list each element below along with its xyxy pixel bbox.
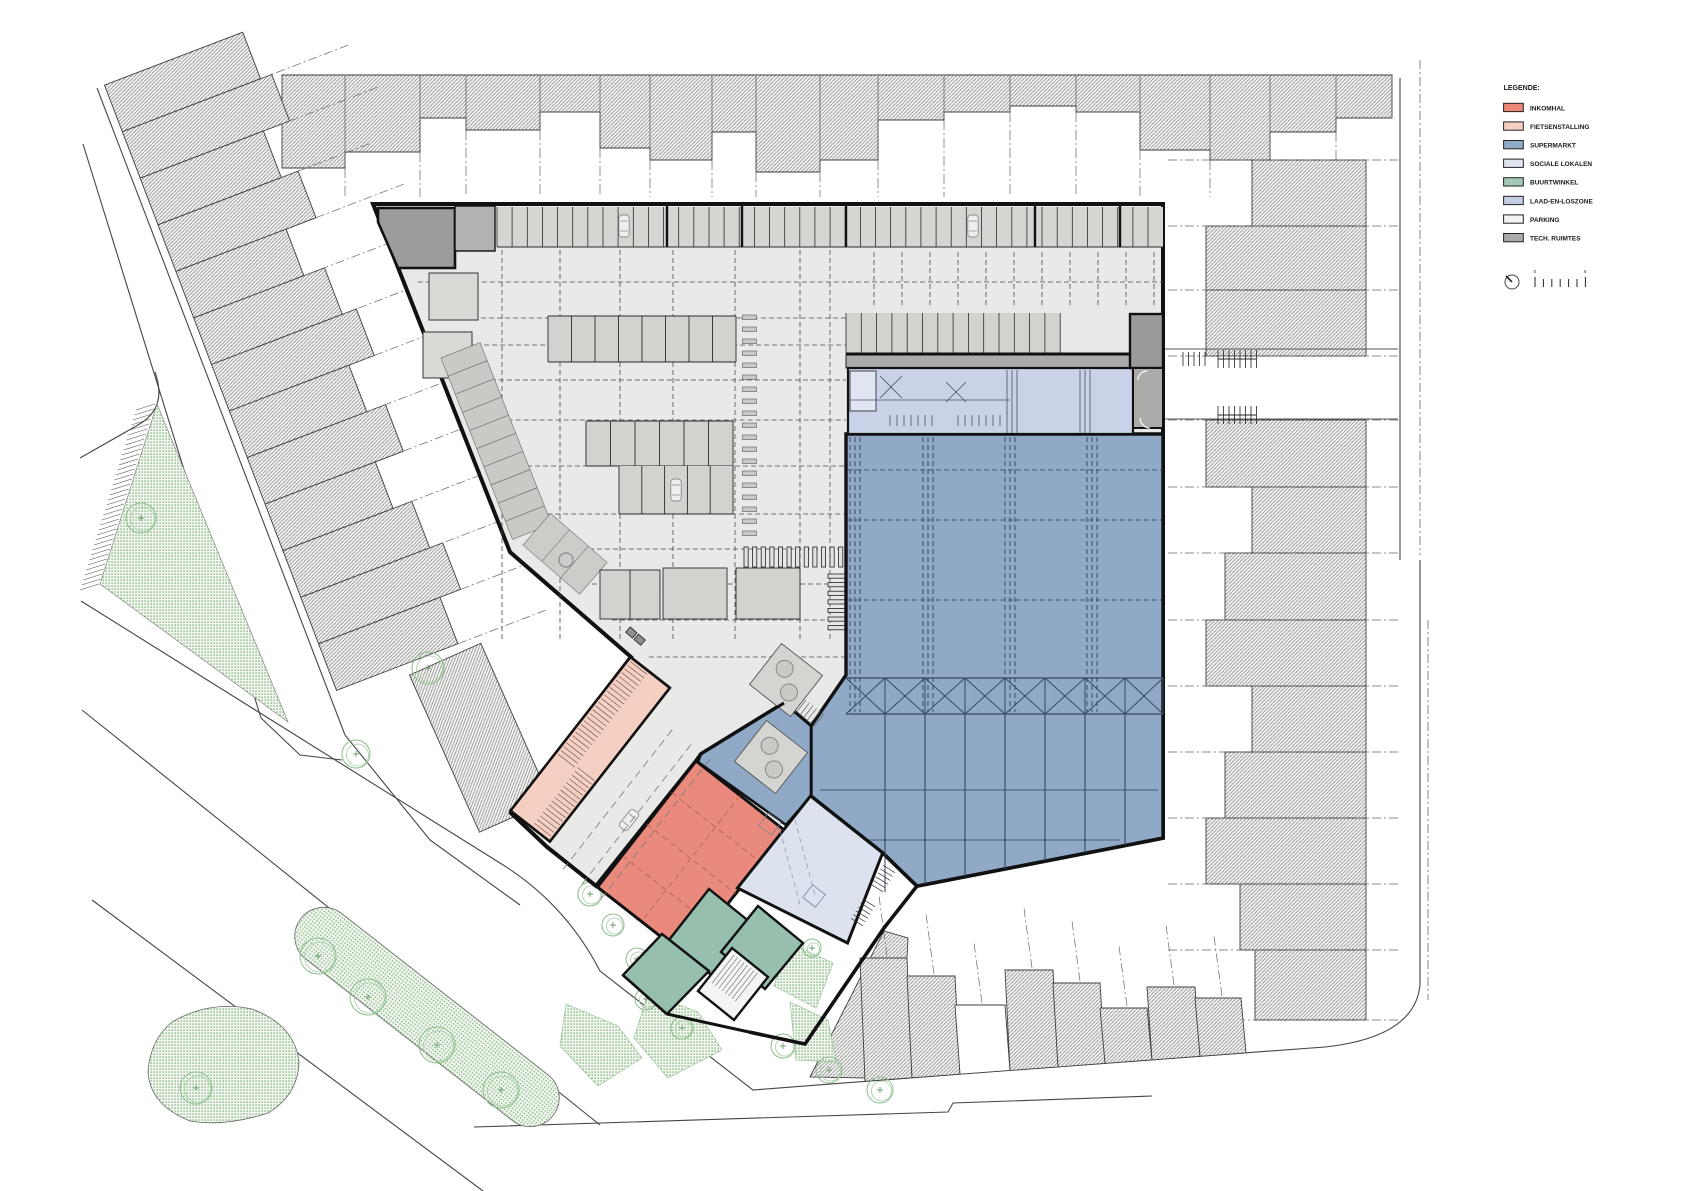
svg-text:SOCIALE LOKALEN: SOCIALE LOKALEN (1530, 161, 1592, 168)
svg-text:BUURTWINKEL: BUURTWINKEL (1530, 180, 1578, 187)
svg-text:LEGENDE:: LEGENDE: (1504, 85, 1540, 92)
svg-text:FIETSENSTALLING: FIETSENSTALLING (1530, 124, 1589, 131)
svg-text:LAAD-EN-LOSZONE: LAAD-EN-LOSZONE (1530, 198, 1593, 205)
svg-text:PARKING: PARKING (1530, 217, 1560, 224)
svg-text:INKOMHAL: INKOMHAL (1530, 105, 1565, 112)
svg-text:SUPERMARKT: SUPERMARKT (1530, 143, 1576, 150)
svg-text:TECH. RUIMTES: TECH. RUIMTES (1530, 236, 1581, 243)
